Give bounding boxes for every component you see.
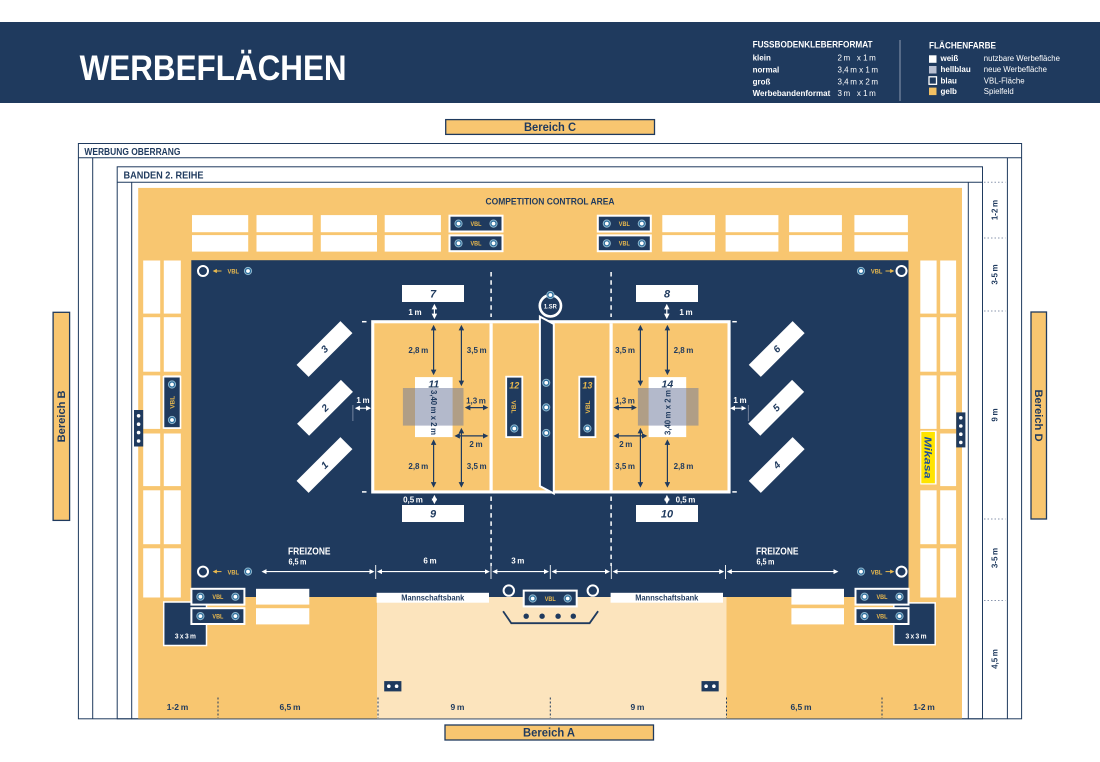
svg-text:6 m: 6 m: [423, 557, 436, 566]
svg-text:12: 12: [509, 381, 519, 391]
svg-text:3,5 m: 3,5 m: [615, 346, 635, 355]
svg-text:2,8 m: 2,8 m: [408, 346, 428, 355]
svg-text:6,5 m: 6,5 m: [757, 557, 775, 567]
svg-text:1,3 m: 1,3 m: [615, 396, 635, 405]
svg-text:2 m: 2 m: [469, 440, 482, 449]
svg-text:Spielfeld: Spielfeld: [984, 87, 1014, 96]
svg-text:10: 10: [661, 509, 674, 521]
svg-text:VBL: VBL: [585, 400, 592, 413]
svg-text:VBL: VBL: [170, 396, 177, 409]
svg-text:VBL: VBL: [228, 569, 240, 576]
svg-text:1-2 m: 1-2 m: [167, 702, 189, 712]
svg-text:3,4 m x 1 m: 3,4 m x 1 m: [838, 65, 879, 74]
svg-text:Bereich D: Bereich D: [1032, 390, 1044, 442]
svg-text:1-2 m: 1-2 m: [991, 200, 1000, 220]
svg-text:Mannschaftsbank: Mannschaftsbank: [401, 594, 465, 603]
svg-text:Mikasa: Mikasa: [922, 437, 933, 480]
svg-text:hellblau: hellblau: [941, 65, 971, 74]
svg-text:VBL: VBL: [228, 269, 240, 276]
svg-text:14: 14: [662, 378, 674, 390]
svg-text:1,3 m: 1,3 m: [466, 396, 486, 405]
svg-text:neue Werbefläche: neue Werbefläche: [984, 65, 1047, 74]
svg-text:2 m x 1 m: 2 m x 1 m: [838, 54, 877, 63]
svg-text:FUSSBODENKLEBERFORMAT: FUSSBODENKLEBERFORMAT: [753, 39, 873, 50]
svg-text:1 m: 1 m: [733, 396, 746, 405]
svg-text:blau: blau: [941, 77, 958, 86]
svg-text:Bereich A: Bereich A: [523, 728, 575, 740]
svg-text:2,8 m: 2,8 m: [674, 462, 694, 471]
svg-text:COMPETITION CONTROL AREA: COMPETITION CONTROL AREA: [486, 197, 615, 208]
svg-text:3 m: 3 m: [511, 557, 524, 566]
svg-text:0,5 m: 0,5 m: [676, 495, 696, 504]
svg-text:2 m: 2 m: [619, 440, 632, 449]
svg-text:klein: klein: [753, 54, 771, 63]
svg-text:1-2 m: 1-2 m: [913, 702, 935, 712]
svg-text:3-5 m: 3-5 m: [991, 548, 1000, 568]
svg-text:VBL: VBL: [871, 569, 883, 576]
svg-text:0,5 m: 0,5 m: [403, 495, 423, 504]
svg-text:1 m: 1 m: [408, 308, 421, 317]
svg-text:6,5 m: 6,5 m: [790, 702, 812, 712]
svg-text:3 m x 1 m: 3 m x 1 m: [838, 89, 877, 98]
svg-text:Bereich C: Bereich C: [524, 122, 576, 134]
svg-text:9: 9: [430, 509, 437, 521]
svg-text:nutzbare Werbefläche: nutzbare Werbefläche: [984, 54, 1060, 63]
svg-text:3,4 m x 2 m: 3,4 m x 2 m: [838, 77, 879, 86]
svg-text:WERBEFLÄCHEN: WERBEFLÄCHEN: [80, 49, 347, 88]
svg-text:VBL: VBL: [871, 269, 883, 276]
svg-text:4,5 m: 4,5 m: [991, 649, 1000, 669]
svg-text:6,5 m: 6,5 m: [279, 702, 301, 712]
svg-text:3,40 m x 2 m: 3,40 m x 2 m: [663, 390, 672, 435]
svg-text:1.SR: 1.SR: [544, 303, 557, 310]
svg-text:1 m: 1 m: [679, 308, 692, 317]
svg-text:VBL: VBL: [510, 401, 517, 414]
svg-text:normal: normal: [753, 65, 780, 74]
svg-text:13: 13: [582, 381, 592, 391]
svg-text:9 m: 9 m: [991, 408, 1000, 421]
svg-text:VBL-Fläche: VBL-Fläche: [984, 77, 1025, 86]
svg-text:6,5 m: 6,5 m: [289, 557, 307, 567]
svg-text:3,40 m x 2 m: 3,40 m x 2 m: [429, 390, 438, 435]
svg-text:Bereich B: Bereich B: [56, 390, 68, 442]
svg-text:3,5 m: 3,5 m: [615, 462, 635, 471]
svg-text:gelb: gelb: [941, 87, 958, 96]
svg-text:weiß: weiß: [940, 54, 959, 63]
svg-text:Werbebandenformat: Werbebandenformat: [753, 89, 831, 98]
svg-text:2,8 m: 2,8 m: [408, 462, 428, 471]
svg-text:FLÄCHENFARBE: FLÄCHENFARBE: [929, 40, 996, 51]
svg-text:9 m: 9 m: [451, 702, 465, 712]
svg-text:Mannschaftsbank: Mannschaftsbank: [635, 594, 699, 603]
svg-text:7: 7: [430, 289, 437, 301]
svg-text:8: 8: [664, 289, 671, 301]
svg-text:3 x 3 m: 3 x 3 m: [906, 631, 927, 640]
svg-text:11: 11: [428, 378, 439, 390]
svg-text:groß: groß: [753, 77, 771, 86]
svg-text:1 m: 1 m: [356, 396, 369, 405]
svg-text:BANDEN 2. REIHE: BANDEN 2. REIHE: [124, 171, 204, 182]
svg-text:3,5 m: 3,5 m: [467, 346, 487, 355]
svg-text:9 m: 9 m: [631, 702, 645, 712]
svg-text:WERBUNG OBERRANG: WERBUNG OBERRANG: [84, 147, 180, 158]
svg-text:3 x 3 m: 3 x 3 m: [175, 632, 196, 641]
svg-text:3,5 m: 3,5 m: [467, 462, 487, 471]
svg-text:3-5 m: 3-5 m: [991, 264, 1000, 284]
svg-text:2,8 m: 2,8 m: [674, 346, 694, 355]
